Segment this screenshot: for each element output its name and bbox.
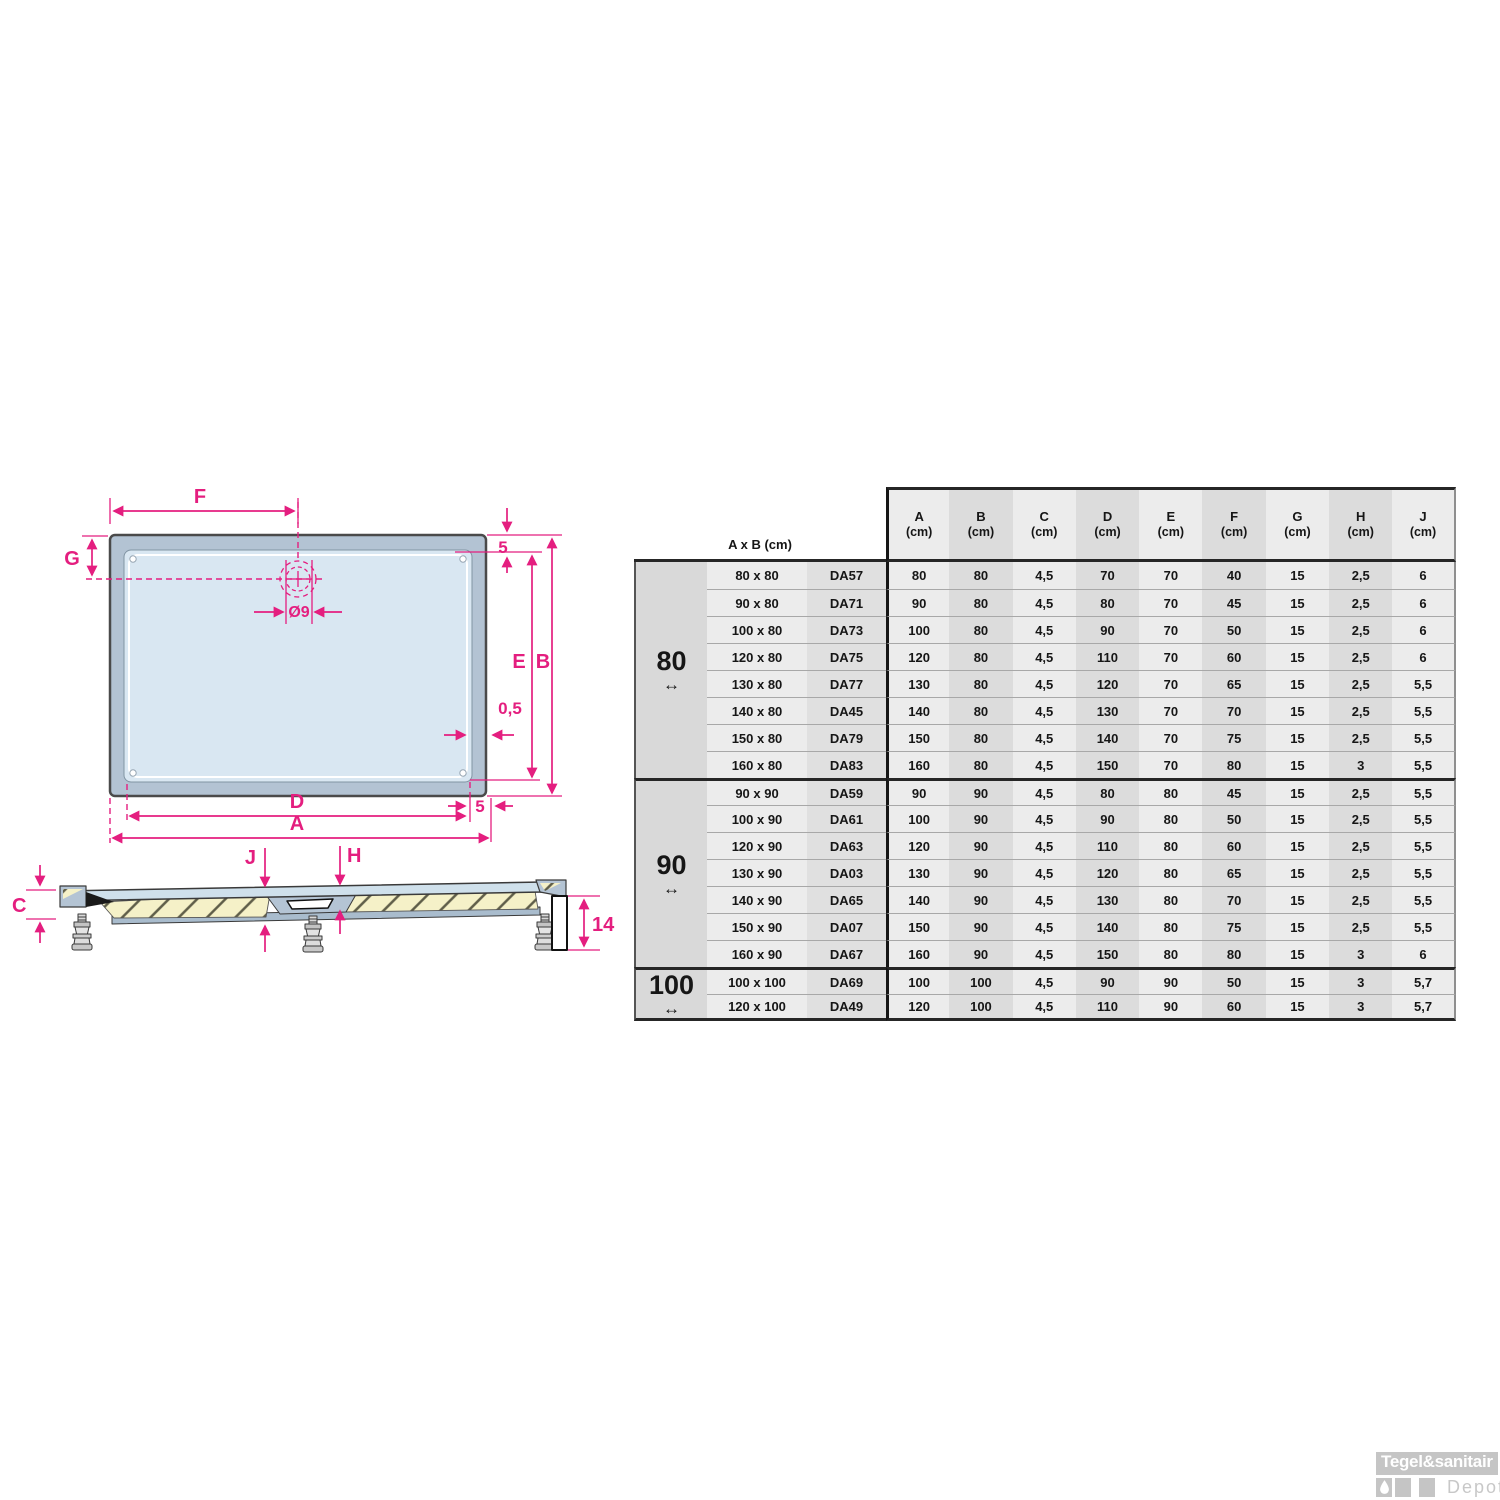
value-cell-e: 90: [1139, 994, 1202, 1021]
code-cell: DA65: [807, 886, 886, 913]
value-cell-f: 60: [1202, 643, 1265, 670]
watermark-brand: Tegel&sanitair: [1376, 1452, 1498, 1475]
value-cell-b: 90: [949, 859, 1012, 886]
value-cell-f: 75: [1202, 724, 1265, 751]
value-cell-j: 5,7: [1392, 967, 1455, 994]
code-cell: DA75: [807, 643, 886, 670]
size-cell: 160 x 90: [707, 940, 807, 967]
droplet-icon: [1376, 1478, 1392, 1497]
code-cell: DA07: [807, 913, 886, 940]
product-spec-sheet: F G 5 E B 0,5: [0, 0, 1500, 1500]
value-cell-a: 160: [886, 940, 949, 967]
dim-label-f: F: [194, 486, 206, 508]
value-cell-d: 140: [1076, 724, 1139, 751]
value-cell-e: 80: [1139, 832, 1202, 859]
size-cell: 150 x 80: [707, 724, 807, 751]
watermark-sub: Depot: [1447, 1477, 1500, 1498]
size-cell: 140 x 90: [707, 886, 807, 913]
value-cell-g: 15: [1266, 859, 1329, 886]
value-cell-g: 15: [1266, 670, 1329, 697]
code-cell: DA03: [807, 859, 886, 886]
value-cell-g: 15: [1266, 913, 1329, 940]
value-cell-a: 160: [886, 751, 949, 778]
value-cell-f: 40: [1202, 562, 1265, 589]
value-cell-d: 150: [1076, 940, 1139, 967]
value-cell-f: 70: [1202, 886, 1265, 913]
value-cell-h: 2,5: [1329, 859, 1392, 886]
col-header-h: H(cm): [1329, 487, 1392, 562]
value-cell-c: 4,5: [1013, 589, 1076, 616]
value-cell-j: 5,5: [1392, 886, 1455, 913]
dim-label-edge: 0,5: [498, 699, 522, 718]
value-cell-e: 70: [1139, 562, 1202, 589]
col-header-b: B(cm): [949, 487, 1012, 562]
value-cell-h: 2,5: [1329, 616, 1392, 643]
value-cell-f: 60: [1202, 994, 1265, 1021]
value-cell-j: 6: [1392, 940, 1455, 967]
code-cell: DA69: [807, 967, 886, 994]
value-cell-b: 80: [949, 643, 1012, 670]
code-cell: DA83: [807, 751, 886, 778]
value-cell-f: 45: [1202, 589, 1265, 616]
value-cell-h: 3: [1329, 994, 1392, 1021]
size-cell: 150 x 90: [707, 913, 807, 940]
dim-label-height: 14: [592, 914, 615, 936]
width-arrow-icon: ↔: [663, 1000, 680, 1017]
value-cell-c: 4,5: [1013, 778, 1076, 805]
value-cell-g: 15: [1266, 562, 1329, 589]
value-cell-h: 2,5: [1329, 805, 1392, 832]
value-cell-e: 70: [1139, 724, 1202, 751]
value-cell-f: 50: [1202, 967, 1265, 994]
value-cell-a: 90: [886, 778, 949, 805]
value-cell-e: 70: [1139, 697, 1202, 724]
value-cell-c: 4,5: [1013, 832, 1076, 859]
adjustable-foot-left: [72, 914, 92, 950]
value-cell-d: 80: [1076, 778, 1139, 805]
value-cell-e: 70: [1139, 616, 1202, 643]
value-cell-f: 75: [1202, 913, 1265, 940]
value-cell-b: 90: [949, 832, 1012, 859]
col-header-c: C(cm): [1013, 487, 1076, 562]
value-cell-g: 15: [1266, 805, 1329, 832]
value-cell-d: 140: [1076, 913, 1139, 940]
value-cell-j: 5,5: [1392, 832, 1455, 859]
value-cell-d: 130: [1076, 886, 1139, 913]
value-cell-e: 70: [1139, 751, 1202, 778]
size-cell: 100 x 90: [707, 805, 807, 832]
value-cell-h: 2,5: [1329, 697, 1392, 724]
value-cell-h: 2,5: [1329, 913, 1392, 940]
group-label-100: 100↔: [634, 967, 707, 1021]
value-cell-c: 4,5: [1013, 805, 1076, 832]
value-cell-j: 5,5: [1392, 724, 1455, 751]
dim-label-drain: Ø9: [288, 604, 309, 621]
value-cell-e: 70: [1139, 670, 1202, 697]
size-cell: 100 x 100: [707, 967, 807, 994]
code-cell: DA63: [807, 832, 886, 859]
value-cell-e: 90: [1139, 967, 1202, 994]
dim-label-b: B: [536, 651, 550, 673]
value-cell-b: 90: [949, 940, 1012, 967]
value-cell-c: 4,5: [1013, 994, 1076, 1021]
value-cell-j: 5,5: [1392, 697, 1455, 724]
value-cell-b: 80: [949, 589, 1012, 616]
value-cell-a: 150: [886, 913, 949, 940]
dim-label-c: C: [12, 895, 26, 917]
value-cell-c: 4,5: [1013, 886, 1076, 913]
value-cell-a: 90: [886, 589, 949, 616]
value-cell-g: 15: [1266, 724, 1329, 751]
code-cell: DA61: [807, 805, 886, 832]
value-cell-c: 4,5: [1013, 643, 1076, 670]
value-cell-g: 15: [1266, 778, 1329, 805]
value-cell-a: 150: [886, 724, 949, 751]
width-arrow-icon: ↔: [663, 676, 680, 693]
value-cell-d: 90: [1076, 805, 1139, 832]
value-cell-g: 15: [1266, 589, 1329, 616]
value-cell-h: 3: [1329, 967, 1392, 994]
value-cell-e: 80: [1139, 886, 1202, 913]
value-cell-j: 5,7: [1392, 994, 1455, 1021]
size-cell: 160 x 80: [707, 751, 807, 778]
value-cell-g: 15: [1266, 832, 1329, 859]
col-header-d: D(cm): [1076, 487, 1139, 562]
code-cell: DA59: [807, 778, 886, 805]
value-cell-j: 6: [1392, 589, 1455, 616]
dim-label-g: G: [64, 548, 80, 570]
value-cell-j: 6: [1392, 643, 1455, 670]
value-cell-g: 15: [1266, 886, 1329, 913]
value-cell-h: 2,5: [1329, 778, 1392, 805]
value-cell-d: 110: [1076, 994, 1139, 1021]
value-cell-b: 90: [949, 805, 1012, 832]
value-cell-a: 80: [886, 562, 949, 589]
value-cell-h: 2,5: [1329, 724, 1392, 751]
value-cell-d: 90: [1076, 967, 1139, 994]
table-corner-header: A x B (cm): [634, 487, 886, 562]
value-cell-c: 4,5: [1013, 562, 1076, 589]
value-cell-h: 3: [1329, 940, 1392, 967]
value-cell-h: 2,5: [1329, 589, 1392, 616]
size-cell: 90 x 80: [707, 589, 807, 616]
code-cell: DA67: [807, 940, 886, 967]
value-cell-a: 100: [886, 616, 949, 643]
value-cell-b: 100: [949, 967, 1012, 994]
size-cell: 100 x 80: [707, 616, 807, 643]
value-cell-e: 70: [1139, 589, 1202, 616]
value-cell-b: 80: [949, 562, 1012, 589]
size-cell: 120 x 90: [707, 832, 807, 859]
technical-drawing: F G 5 E B 0,5: [0, 440, 650, 1000]
value-cell-f: 65: [1202, 670, 1265, 697]
value-cell-e: 80: [1139, 859, 1202, 886]
value-cell-b: 90: [949, 913, 1012, 940]
col-header-j: J(cm): [1392, 487, 1455, 562]
value-cell-a: 100: [886, 805, 949, 832]
value-cell-g: 15: [1266, 967, 1329, 994]
value-cell-g: 15: [1266, 940, 1329, 967]
value-cell-f: 70: [1202, 697, 1265, 724]
value-cell-b: 80: [949, 616, 1012, 643]
value-cell-h: 2,5: [1329, 643, 1392, 670]
tray-side-view: [60, 880, 567, 952]
size-cell: 80 x 80: [707, 562, 807, 589]
col-header-e: E(cm): [1139, 487, 1202, 562]
value-cell-h: 2,5: [1329, 886, 1392, 913]
dim-label-rim-top: 5: [498, 538, 507, 557]
value-cell-e: 70: [1139, 643, 1202, 670]
value-cell-e: 80: [1139, 913, 1202, 940]
value-cell-f: 80: [1202, 940, 1265, 967]
size-cell: 130 x 90: [707, 859, 807, 886]
value-cell-j: 6: [1392, 616, 1455, 643]
value-cell-f: 50: [1202, 616, 1265, 643]
value-cell-b: 80: [949, 751, 1012, 778]
value-cell-c: 4,5: [1013, 967, 1076, 994]
value-cell-c: 4,5: [1013, 616, 1076, 643]
col-header-f: F(cm): [1202, 487, 1265, 562]
col-header-a: A(cm): [886, 487, 949, 562]
value-cell-g: 15: [1266, 643, 1329, 670]
value-cell-d: 120: [1076, 859, 1139, 886]
value-cell-g: 15: [1266, 697, 1329, 724]
col-header-g: G(cm): [1266, 487, 1329, 562]
value-cell-a: 130: [886, 859, 949, 886]
value-cell-f: 60: [1202, 832, 1265, 859]
value-cell-b: 80: [949, 670, 1012, 697]
dim-label-a: A: [290, 813, 304, 835]
adjustable-foot-center: [303, 916, 323, 952]
value-cell-h: 2,5: [1329, 562, 1392, 589]
dim-label-j: J: [245, 847, 256, 869]
value-cell-h: 2,5: [1329, 670, 1392, 697]
group-label-90: 90↔: [634, 778, 707, 967]
value-cell-d: 150: [1076, 751, 1139, 778]
value-cell-f: 80: [1202, 751, 1265, 778]
size-cell: 90 x 90: [707, 778, 807, 805]
value-cell-a: 140: [886, 886, 949, 913]
value-cell-a: 120: [886, 994, 949, 1021]
value-cell-b: 80: [949, 724, 1012, 751]
value-cell-a: 130: [886, 670, 949, 697]
size-cell: 120 x 80: [707, 643, 807, 670]
value-cell-d: 130: [1076, 697, 1139, 724]
spec-table: A x B (cm) A(cm)B(cm)C(cm)D(cm)E(cm)F(cm…: [634, 487, 1456, 1021]
code-cell: DA71: [807, 589, 886, 616]
value-cell-d: 110: [1076, 832, 1139, 859]
value-cell-a: 120: [886, 832, 949, 859]
size-cell: 140 x 80: [707, 697, 807, 724]
watermark-square: [1395, 1478, 1411, 1497]
value-cell-c: 4,5: [1013, 724, 1076, 751]
size-cell: 120 x 100: [707, 994, 807, 1021]
value-cell-d: 90: [1076, 616, 1139, 643]
code-cell: DA73: [807, 616, 886, 643]
value-cell-h: 2,5: [1329, 832, 1392, 859]
value-cell-d: 70: [1076, 562, 1139, 589]
value-cell-b: 80: [949, 697, 1012, 724]
side-apron-panel: [552, 896, 567, 950]
dim-label-d: D: [290, 791, 304, 813]
dim-label-rim-bottom: 5: [475, 797, 484, 816]
spec-table-grid: A x B (cm) A(cm)B(cm)C(cm)D(cm)E(cm)F(cm…: [634, 487, 1456, 1021]
value-cell-j: 5,5: [1392, 913, 1455, 940]
code-cell: DA49: [807, 994, 886, 1021]
value-cell-c: 4,5: [1013, 859, 1076, 886]
value-cell-c: 4,5: [1013, 670, 1076, 697]
value-cell-j: 5,5: [1392, 805, 1455, 832]
value-cell-f: 50: [1202, 805, 1265, 832]
value-cell-f: 65: [1202, 859, 1265, 886]
value-cell-b: 100: [949, 994, 1012, 1021]
watermark-logo: Tegel&sanitair Depot: [1376, 1452, 1500, 1498]
value-cell-a: 100: [886, 967, 949, 994]
value-cell-h: 3: [1329, 751, 1392, 778]
code-cell: DA45: [807, 697, 886, 724]
drain-trap: [287, 899, 333, 909]
value-cell-c: 4,5: [1013, 751, 1076, 778]
value-cell-d: 80: [1076, 589, 1139, 616]
dim-label-e: E: [512, 651, 525, 673]
value-cell-g: 15: [1266, 994, 1329, 1021]
value-cell-e: 80: [1139, 805, 1202, 832]
value-cell-g: 15: [1266, 751, 1329, 778]
dim-label-h: H: [347, 845, 361, 867]
value-cell-j: 5,5: [1392, 751, 1455, 778]
value-cell-f: 45: [1202, 778, 1265, 805]
side-right-cap: [536, 880, 566, 897]
size-cell: 130 x 80: [707, 670, 807, 697]
value-cell-e: 80: [1139, 778, 1202, 805]
tray-top-view: [86, 502, 486, 796]
width-arrow-icon: ↔: [663, 880, 680, 897]
value-cell-b: 90: [949, 886, 1012, 913]
watermark-square: [1419, 1478, 1435, 1497]
value-cell-c: 4,5: [1013, 697, 1076, 724]
value-cell-j: 5,5: [1392, 859, 1455, 886]
value-cell-c: 4,5: [1013, 940, 1076, 967]
value-cell-j: 6: [1392, 562, 1455, 589]
code-cell: DA57: [807, 562, 886, 589]
group-label-80: 80↔: [634, 562, 707, 778]
value-cell-a: 120: [886, 643, 949, 670]
value-cell-d: 120: [1076, 670, 1139, 697]
value-cell-d: 110: [1076, 643, 1139, 670]
code-cell: DA79: [807, 724, 886, 751]
value-cell-j: 5,5: [1392, 670, 1455, 697]
value-cell-b: 90: [949, 778, 1012, 805]
value-cell-j: 5,5: [1392, 778, 1455, 805]
code-cell: DA77: [807, 670, 886, 697]
value-cell-g: 15: [1266, 616, 1329, 643]
value-cell-e: 80: [1139, 940, 1202, 967]
value-cell-c: 4,5: [1013, 913, 1076, 940]
value-cell-a: 140: [886, 697, 949, 724]
